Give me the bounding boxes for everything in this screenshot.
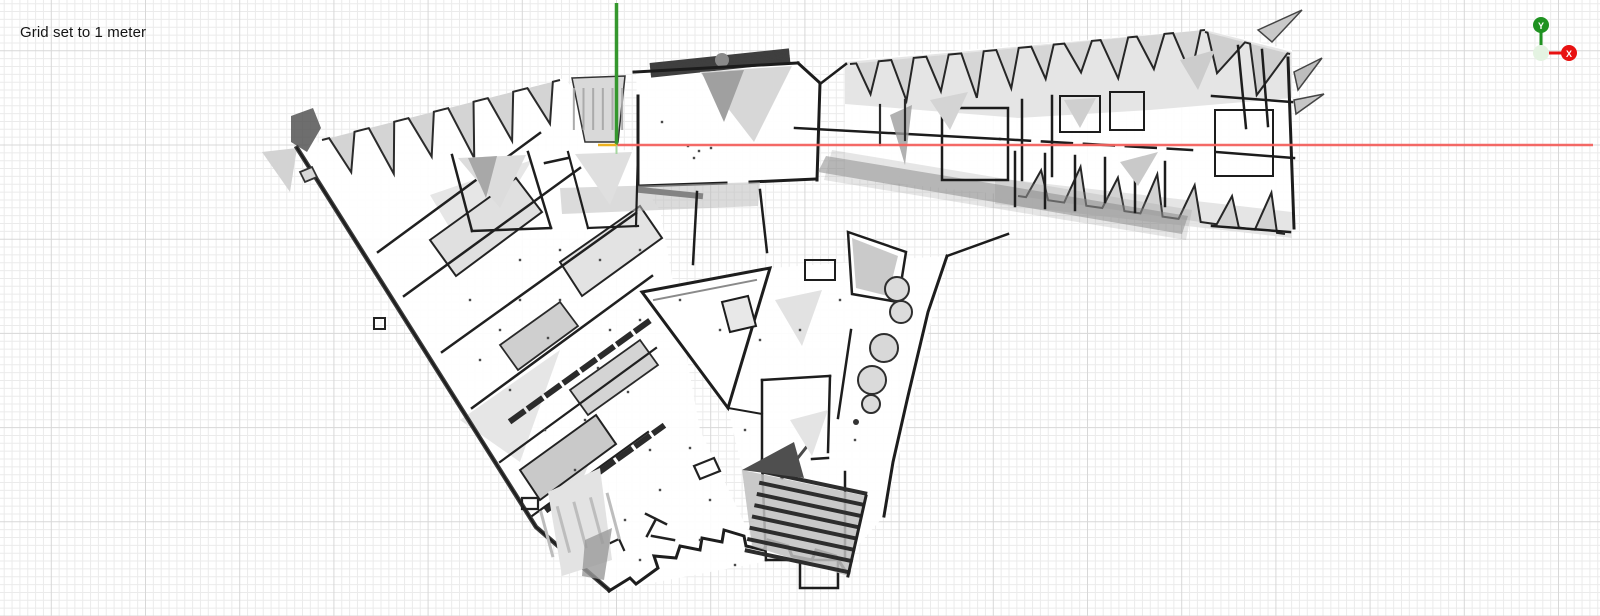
3d-viewport[interactable]: Grid set to 1 meter Y X xyxy=(0,0,1600,616)
orientation-gizmo[interactable]: Y X xyxy=(1506,10,1586,74)
occupancy-map xyxy=(262,10,1324,591)
gizmo-x-label: X xyxy=(1566,49,1572,59)
gizmo-y-label: Y xyxy=(1538,21,1544,31)
gizmo-origin-handle[interactable] xyxy=(1533,45,1549,61)
grid-size-label: Grid set to 1 meter xyxy=(20,24,146,42)
map-scene xyxy=(0,0,1600,616)
